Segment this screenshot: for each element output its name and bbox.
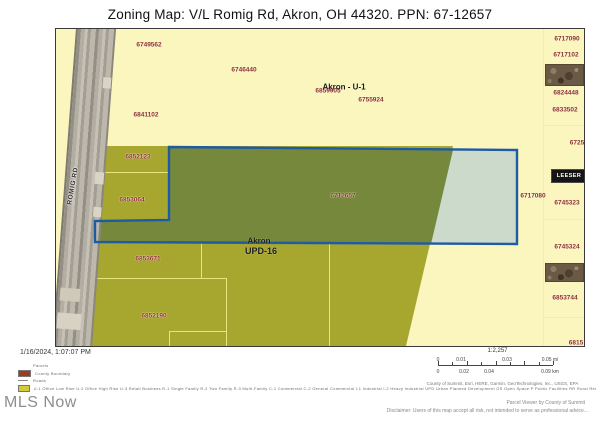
parcel-number-6853744: 6853744 [552, 295, 577, 302]
scale-mi-label: 0.01 [456, 357, 466, 363]
viewer-credit: Parcel Viewer by County of Summit [506, 400, 585, 406]
parcel-number-6746440: 6746440 [231, 67, 256, 74]
parcel-number-6852123: 6852123 [125, 154, 150, 161]
scale-tick [524, 361, 525, 365]
zone-label: Akron [247, 237, 270, 246]
parcel-number-6725: 6725 [570, 140, 584, 147]
scale-mi-label: 0.03 [502, 357, 512, 363]
parcel-number-6824448: 6824448 [553, 90, 578, 97]
legend-swatch [18, 385, 30, 392]
map-canvas: ROMIG RD LEESER 674956267464406859905675… [55, 28, 585, 347]
parcel-number-6745324: 6745324 [554, 244, 579, 251]
legend-label: County Boundary [35, 371, 70, 376]
parcel-number-6755924: 6755924 [358, 97, 383, 104]
parcel-number-6717102: 6717102 [553, 52, 578, 59]
scale-mi-label: 0.05 mi [542, 357, 558, 363]
parcel-number-6853671: 6853671 [135, 256, 160, 263]
parcel-number-6745323: 6745323 [554, 200, 579, 207]
scale-km-label: 0.02 [459, 369, 469, 375]
scale-km-label: 0.09 km [541, 369, 559, 375]
legend-label: Parcels [33, 363, 48, 368]
scale-tick [467, 361, 468, 365]
parcel-number-6833502: 6833502 [552, 107, 577, 114]
parcel-number-6717080: 6717080 [520, 193, 545, 200]
zoning-map-page: Zoning Map: V/L Romig Rd, Akron, OH 4432… [0, 0, 600, 424]
parcel-number-6749562: 6749562 [136, 42, 161, 49]
scale-bar-line [438, 365, 553, 366]
scale-tick [496, 361, 497, 365]
scale-tick [539, 362, 540, 365]
map-disclaimer: Disclaimer: Users of this map accept all… [387, 408, 588, 414]
scale-km-label: 0 [437, 369, 440, 375]
scale-mi-label: 0 [437, 357, 440, 363]
parcel-number-6717090: 6717090 [554, 36, 579, 43]
legend-label: Roads [33, 378, 46, 383]
parcel-number-6841102: 6841102 [134, 112, 159, 119]
selected-parcel-outline [56, 29, 584, 346]
zone-label: Akron - U-1 [322, 83, 365, 92]
parcel-number-6815: 6815 [569, 340, 583, 347]
legend-line-symbol [18, 380, 28, 381]
map-attribution: County of Summit, Esri, HERE, Garmin, Ge… [420, 381, 585, 386]
page-title: Zoning Map: V/L Romig Rd, Akron, OH 4432… [0, 7, 600, 22]
scale-ratio: 1:2,257 [435, 348, 560, 354]
parcel-number-6853064: 6853064 [119, 197, 144, 204]
mls-now-logo: MLS Now [4, 394, 77, 412]
parcel-number-6712657: 6712657 [330, 193, 355, 200]
scale-tick [452, 362, 453, 365]
parcel-number-6852190: 6852190 [141, 313, 166, 320]
leeser-street-sign: LEESER [551, 169, 585, 183]
scale-tick [481, 362, 482, 365]
zone-label: UPD-16 [245, 246, 277, 256]
export-timestamp: 1/16/2024, 1:07:07 PM [20, 349, 91, 356]
legend-swatch [18, 370, 31, 377]
scale-km-label: 0.04 [484, 369, 494, 375]
